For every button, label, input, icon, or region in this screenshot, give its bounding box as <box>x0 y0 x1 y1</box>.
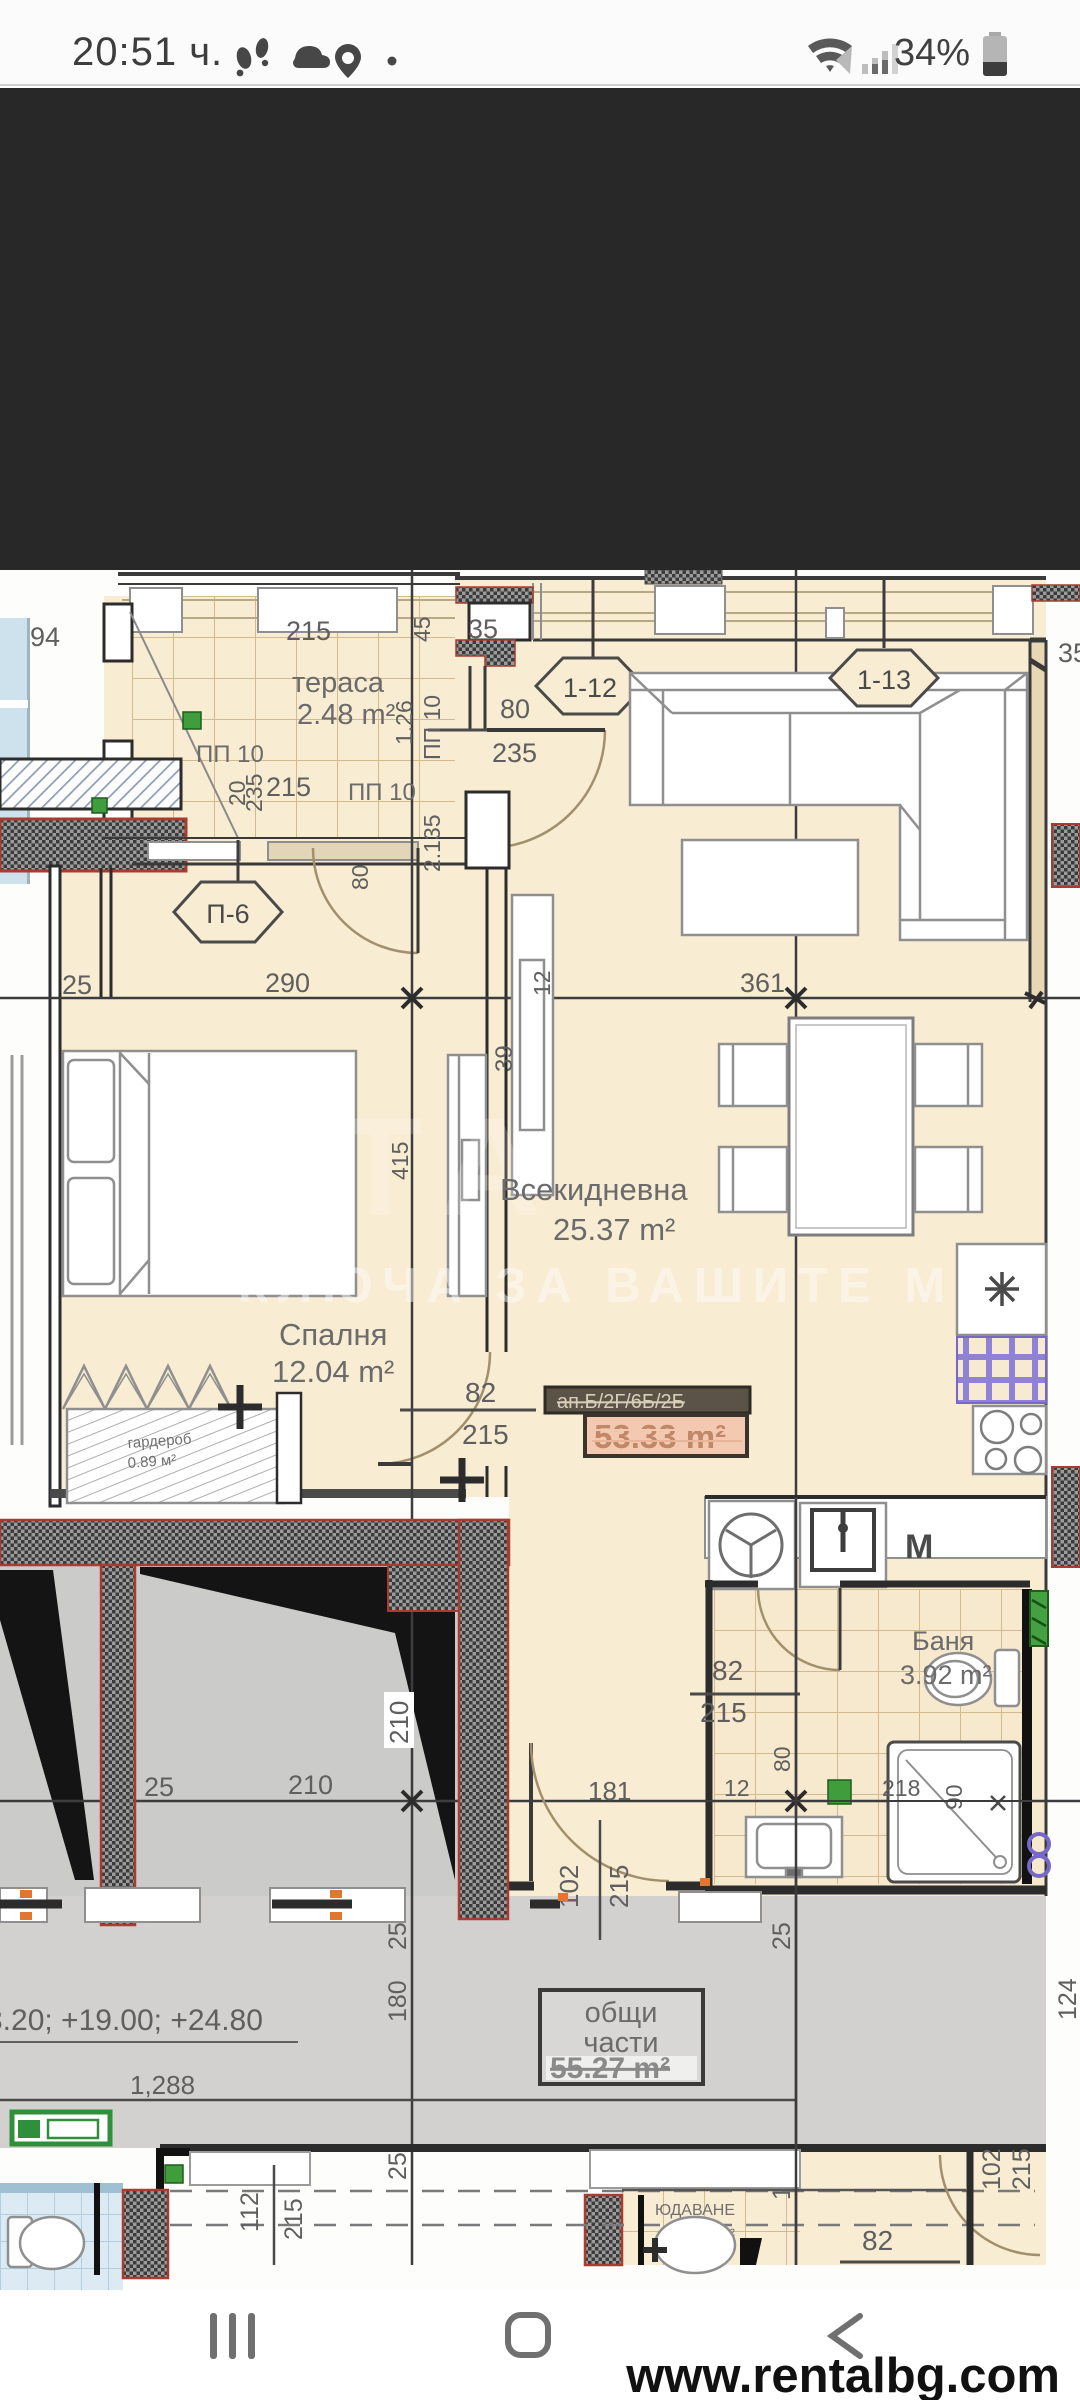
svg-text:35: 35 <box>468 614 498 644</box>
svg-text:90: 90 <box>941 1784 967 1810</box>
svg-text:2.135: 2.135 <box>419 814 445 872</box>
svg-text:218: 218 <box>882 1775 920 1801</box>
svg-text:102: 102 <box>978 2148 1006 2190</box>
svg-text:215: 215 <box>462 1419 509 1450</box>
svg-text:ап.Б/2Г/6Б/2Б: ап.Б/2Г/6Б/2Б <box>557 1391 685 1413</box>
svg-text:55.27 m²: 55.27 m² <box>550 2052 670 2085</box>
svg-text:25: 25 <box>768 1922 796 1950</box>
svg-text:215: 215 <box>286 616 331 646</box>
svg-text:М: М <box>905 1528 933 1566</box>
svg-text:235: 235 <box>492 738 537 768</box>
svg-text:общи: общи <box>585 1997 658 2029</box>
svg-text:82: 82 <box>862 2225 893 2256</box>
svg-text:25.37 m²: 25.37 m² <box>553 1212 675 1247</box>
svg-text:215: 215 <box>700 1697 747 1728</box>
svg-text:25: 25 <box>144 1772 174 1802</box>
svg-text:35: 35 <box>1058 638 1080 668</box>
svg-text:ПП 10: ПП 10 <box>196 741 264 768</box>
svg-text:181: 181 <box>588 1776 631 1806</box>
svg-text:12: 12 <box>724 1775 750 1801</box>
svg-text:0.89 м²: 0.89 м² <box>127 1452 177 1472</box>
svg-text:НТА: НТА <box>210 1088 567 1245</box>
svg-text:235: 235 <box>241 774 267 812</box>
svg-text:3.20; +19.00; +24.80: 3.20; +19.00; +24.80 <box>0 2004 263 2037</box>
svg-text:39: 39 <box>491 1045 518 1072</box>
svg-text:тераса: тераса <box>292 667 385 699</box>
svg-text:82: 82 <box>465 1377 496 1408</box>
svg-text:1.26: 1.26 <box>391 700 417 745</box>
svg-text:361: 361 <box>740 968 785 998</box>
svg-text:80: 80 <box>500 694 530 724</box>
svg-text:124: 124 <box>1054 1978 1080 2020</box>
svg-text:215: 215 <box>604 1865 634 1908</box>
svg-text:53.33 m²: 53.33 m² <box>594 1418 726 1455</box>
svg-text:94: 94 <box>30 622 60 652</box>
svg-text:80: 80 <box>347 864 373 890</box>
svg-text:1-13: 1-13 <box>857 665 911 695</box>
svg-text:12: 12 <box>529 970 555 996</box>
svg-text:180: 180 <box>384 1980 412 2022</box>
svg-text:80: 80 <box>769 1746 795 1772</box>
svg-text:25: 25 <box>62 970 92 1000</box>
svg-text:Баня: Баня <box>912 1626 974 1656</box>
svg-text:ПП 10: ПП 10 <box>419 695 445 760</box>
svg-text:112: 112 <box>236 2192 264 2232</box>
svg-text:215: 215 <box>280 2198 308 2240</box>
svg-text:1-12: 1-12 <box>563 673 617 703</box>
svg-text:215: 215 <box>266 772 311 802</box>
svg-text:П-6: П-6 <box>206 899 249 929</box>
svg-text:3.92 m²: 3.92 m² <box>900 1660 992 1690</box>
svg-text:Всекидневна: Всекидневна <box>500 1172 688 1207</box>
svg-text:210: 210 <box>288 1770 333 1800</box>
svg-text:215: 215 <box>1008 2148 1036 2190</box>
svg-text:45: 45 <box>409 616 435 642</box>
svg-text:25: 25 <box>384 1922 412 1950</box>
svg-text:25: 25 <box>384 2152 412 2180</box>
svg-text:290: 290 <box>265 968 310 998</box>
svg-text:Спалня: Спалня <box>279 1317 387 1352</box>
svg-text:КЛЮЧА ЗА ВАШИТЕ МЕЧ: КЛЮЧА ЗА ВАШИТЕ МЕЧ <box>238 1259 1042 1313</box>
svg-text:12.04 m²: 12.04 m² <box>272 1354 394 1389</box>
svg-text:ПП 10: ПП 10 <box>348 779 416 806</box>
svg-text:82: 82 <box>712 1655 743 1686</box>
svg-text:210: 210 <box>384 1701 414 1744</box>
svg-text:1,288: 1,288 <box>130 2070 195 2100</box>
svg-text:2.48 m²: 2.48 m² <box>297 699 396 731</box>
